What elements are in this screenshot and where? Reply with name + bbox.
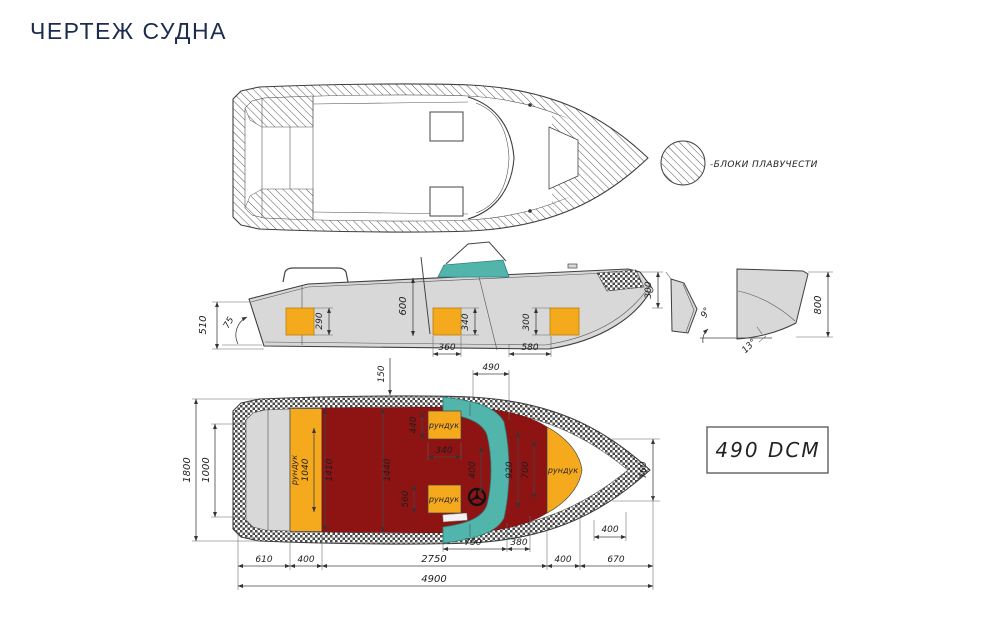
plan-helm-step	[443, 513, 467, 522]
dim-plan-fwd-section: 400	[554, 555, 571, 565]
transom-section-view: 9° 13° 800	[666, 269, 833, 356]
dim-section-side-angle: 9°	[699, 306, 713, 320]
dim-plan-bow-locker-inner: 700	[521, 461, 531, 478]
side-view-locker-mid	[433, 308, 461, 335]
dim-side-stern-locker-height: 290	[315, 312, 325, 329]
top-view-seat-forward	[430, 112, 463, 141]
buoyancy-legend: -БЛОКИ ПЛАВУЧЕСТИ	[661, 141, 818, 185]
dim-plan-bow-locker-length: 920	[505, 461, 515, 478]
top-view-cleat-upper	[528, 103, 532, 107]
dim-plan-transom-width: 1000	[201, 457, 212, 482]
dim-section-deadrise-angle: 13°	[740, 337, 758, 355]
model-box-label: 490 DCM	[715, 438, 820, 462]
buoyancy-label: -БЛОКИ ПЛАВУЧЕСТИ	[710, 160, 818, 170]
deck-plan-view: рундук рундук рундук рундук 150 490 1800…	[182, 358, 660, 590]
side-view-locker-fwd	[550, 308, 579, 335]
side-view-locker-stern	[286, 308, 314, 335]
section-tick	[666, 272, 671, 279]
dim-plan-cockpit-width-aft: 1410	[325, 458, 335, 481]
top-view-stern-deck-hatch-lower	[245, 189, 313, 220]
dim-plan-bow-length: 670	[607, 555, 624, 565]
dim-plan-bow-width: 760	[639, 461, 649, 478]
dim-side-mid-locker-width: 360	[438, 343, 455, 353]
bow-locker-label: рундук	[547, 466, 578, 475]
dim-plan-seat-width: 340	[435, 446, 452, 456]
dim-side-fwd-locker-height: 300	[522, 313, 532, 330]
dim-side-cockpit-depth: 600	[398, 296, 409, 315]
side-view-windshield-glass	[438, 260, 509, 277]
side-view-stern-rail	[283, 268, 348, 282]
dim-plan-console-gap: 380	[510, 538, 527, 548]
buoyancy-block-icon	[661, 141, 705, 185]
section-starboard-panel	[737, 269, 808, 339]
dim-side-transom-angle: 75	[222, 315, 237, 330]
stern-locker-label: рундук	[290, 455, 299, 486]
top-view-seat-aft	[430, 187, 463, 216]
section-angle-arc	[703, 329, 708, 343]
seat-aft-label: рундук	[428, 495, 459, 504]
model-box: 490 DCM	[707, 427, 828, 473]
top-view-windshield-inner	[476, 103, 509, 213]
dim-plan-stern-length: 610	[255, 555, 272, 565]
dim-plan-cockpit-width-mid: 1440	[383, 458, 393, 481]
dim-plan-stern-locker-width: 400	[297, 555, 314, 565]
dim-plan-bow-hatch-length: 400	[601, 525, 618, 535]
dim-section-height: 800	[813, 295, 824, 314]
boat-drawing-canvas: -БЛОКИ ПЛАВУЧЕСТИ	[0, 0, 1006, 628]
dim-plan-seat-aft-length: 560	[401, 490, 411, 507]
dim-plan-console-length: 750	[464, 538, 481, 548]
top-view-cleat-lower	[528, 209, 532, 213]
seat-forward-label: рундук	[428, 421, 459, 430]
top-view-windshield-outer	[468, 97, 514, 219]
boat-drawing-page: ЧЕРТЕЖ СУДНА	[0, 0, 1006, 628]
dim-plan-windshield-offset: 150	[377, 365, 387, 382]
dim-side-locker-spacing: 580	[521, 343, 538, 353]
dim-side-bow-height: 300	[644, 281, 654, 298]
side-view: 510 75 290 600 340 300	[198, 242, 663, 357]
dim-side-transom-height: 510	[198, 315, 209, 334]
dim-plan-walkthrough: 400	[468, 461, 478, 478]
dim-plan-cockpit-length: 2750	[421, 554, 446, 565]
dim-plan-windshield-length: 490	[482, 363, 499, 373]
dim-plan-seat-fwd-length: 440	[409, 416, 419, 433]
dim-side-mid-locker-height: 340	[461, 313, 471, 330]
dim-plan-stern-locker-length: 1040	[301, 458, 311, 481]
dim-plan-beam: 1800	[182, 457, 193, 482]
side-view-cleat	[568, 264, 577, 268]
dim-plan-overall-length: 4900	[421, 574, 446, 585]
top-view	[233, 84, 648, 232]
top-view-stern-deck-hatch-upper	[245, 96, 313, 127]
